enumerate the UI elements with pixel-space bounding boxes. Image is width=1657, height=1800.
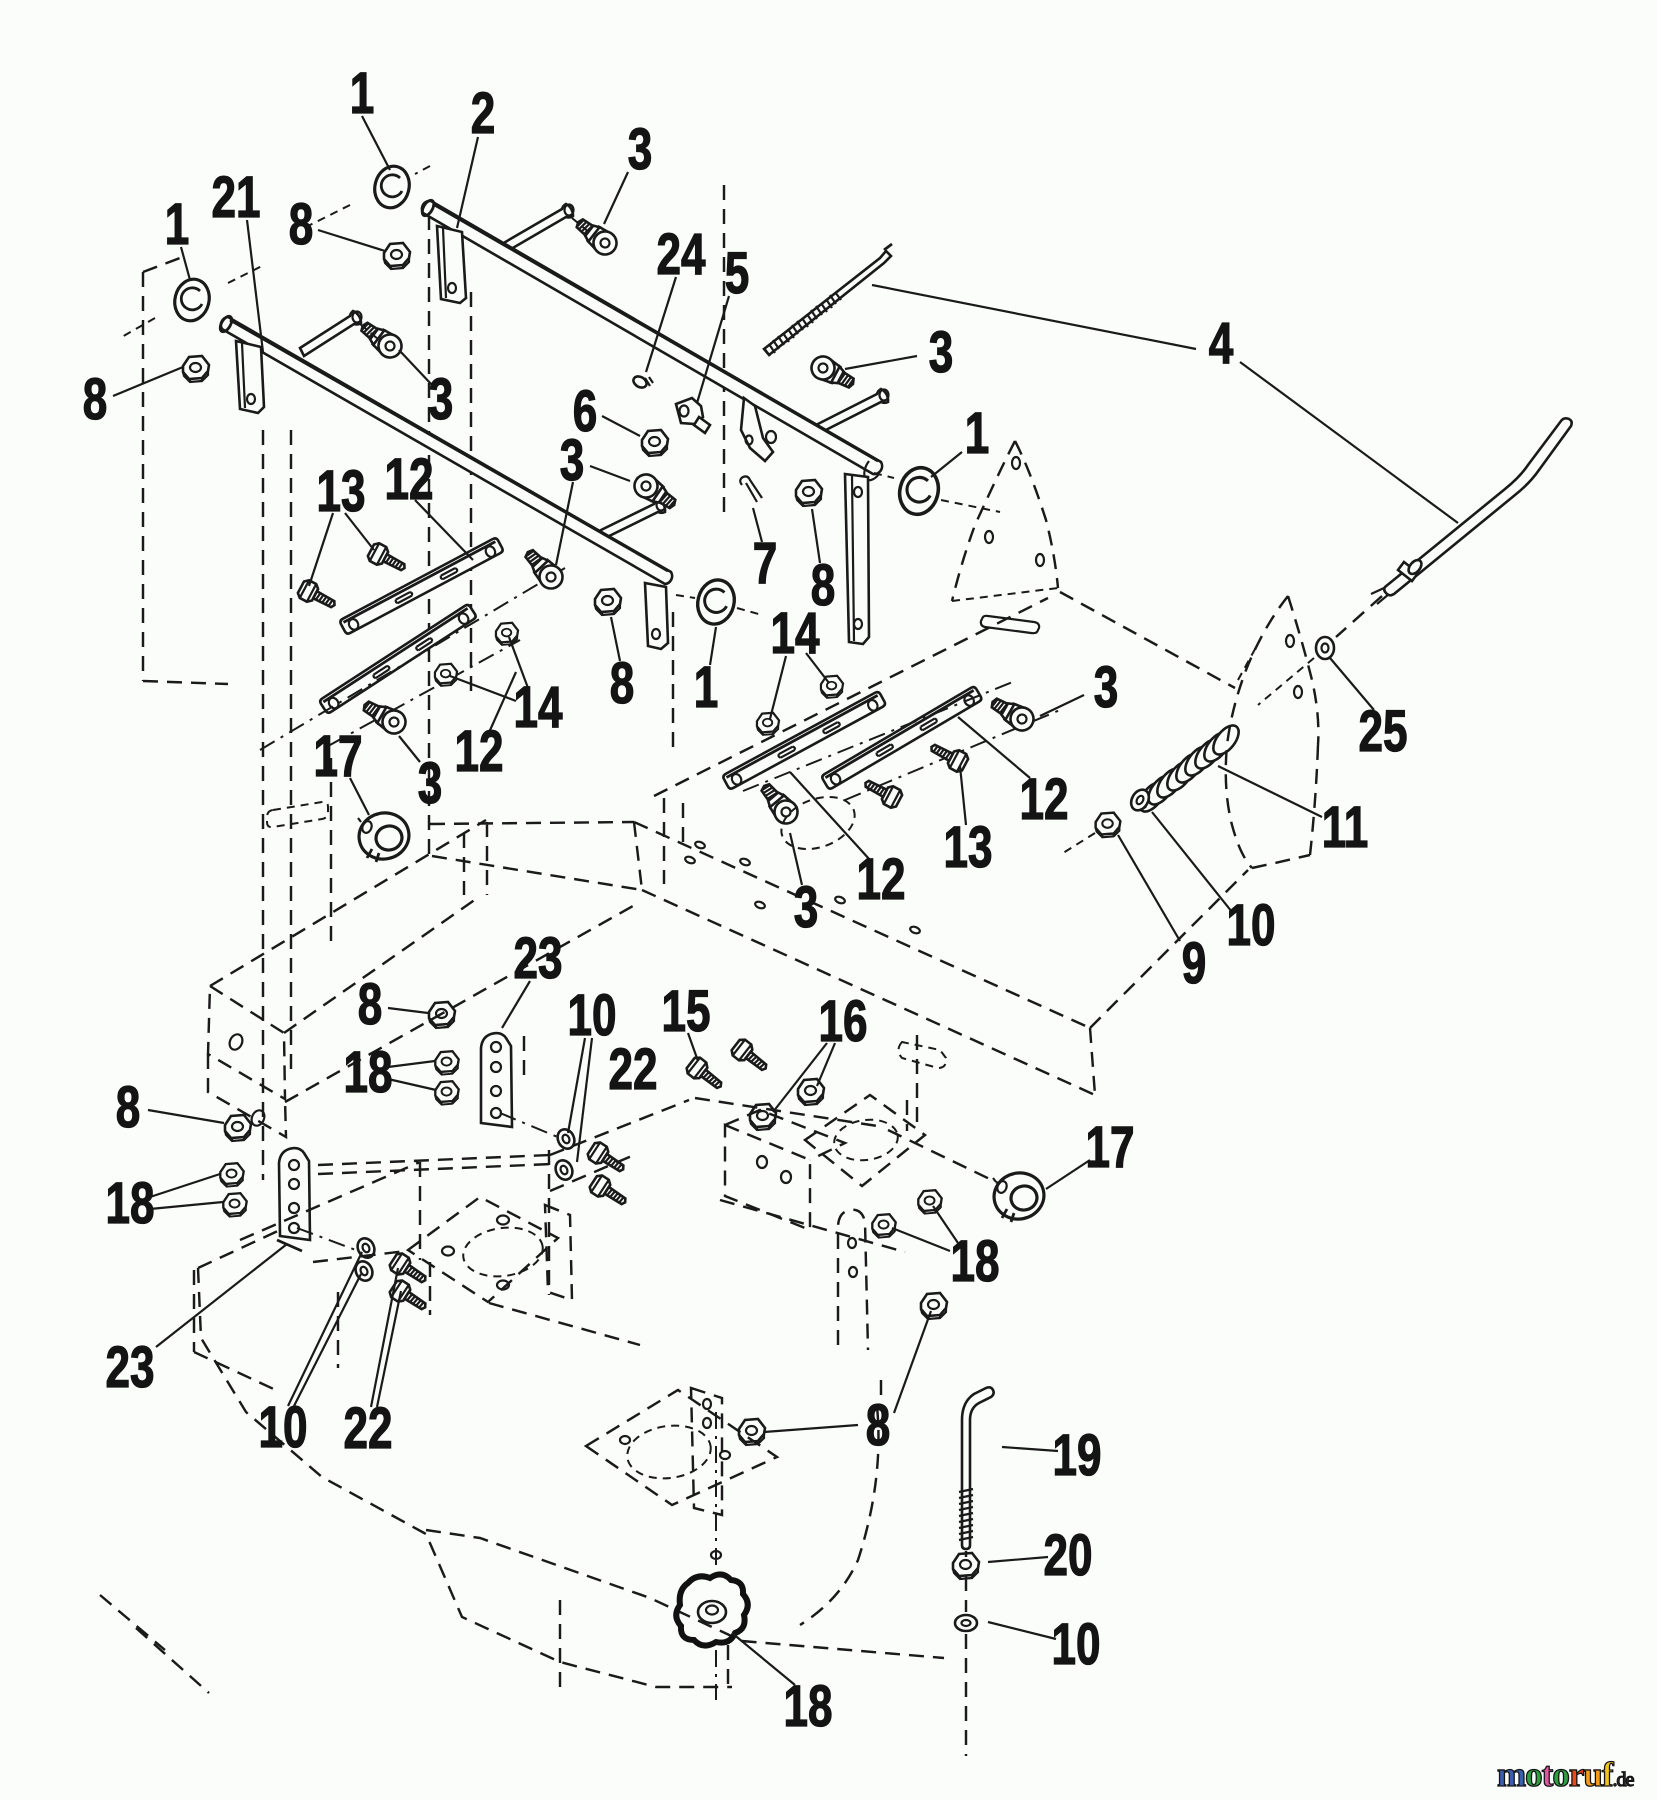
svg-text:3: 3 <box>628 116 653 181</box>
svg-text:10: 10 <box>1051 1611 1100 1676</box>
svg-text:1: 1 <box>165 191 190 256</box>
svg-text:14: 14 <box>513 674 562 739</box>
svg-text:10: 10 <box>1226 892 1275 957</box>
svg-text:21: 21 <box>211 164 260 229</box>
svg-text:9: 9 <box>1182 930 1207 995</box>
svg-text:8: 8 <box>83 366 108 431</box>
svg-text:12: 12 <box>856 846 905 911</box>
svg-text:24: 24 <box>656 221 705 286</box>
svg-text:3: 3 <box>418 750 443 815</box>
svg-text:3: 3 <box>1094 654 1119 719</box>
svg-text:4: 4 <box>1209 310 1234 375</box>
svg-text:25: 25 <box>1358 698 1407 763</box>
svg-text:23: 23 <box>513 925 562 990</box>
svg-text:14: 14 <box>770 600 819 665</box>
svg-text:22: 22 <box>343 1395 392 1460</box>
svg-text:12: 12 <box>454 718 503 783</box>
svg-text:16: 16 <box>818 988 867 1053</box>
svg-text:motoruf.de: motoruf.de <box>1497 1755 1634 1794</box>
svg-text:12: 12 <box>1019 766 1068 831</box>
svg-text:18: 18 <box>783 1673 832 1738</box>
svg-text:20: 20 <box>1043 1522 1092 1587</box>
svg-text:1: 1 <box>965 400 990 465</box>
svg-text:1: 1 <box>694 654 719 719</box>
svg-text:18: 18 <box>105 1170 154 1235</box>
svg-text:8: 8 <box>358 971 383 1036</box>
svg-text:10: 10 <box>258 1394 307 1459</box>
svg-text:23: 23 <box>105 1334 154 1399</box>
svg-text:8: 8 <box>610 650 635 715</box>
svg-text:3: 3 <box>429 366 454 431</box>
svg-text:7: 7 <box>753 530 778 595</box>
svg-text:17: 17 <box>313 723 362 788</box>
svg-text:1: 1 <box>350 60 375 125</box>
svg-text:3: 3 <box>560 427 585 492</box>
svg-text:8: 8 <box>289 191 314 256</box>
svg-text:2: 2 <box>471 80 496 145</box>
svg-text:5: 5 <box>725 240 750 305</box>
svg-text:18: 18 <box>950 1228 999 1293</box>
svg-text:3: 3 <box>929 319 954 384</box>
svg-text:3: 3 <box>794 874 819 939</box>
svg-text:17: 17 <box>1085 1114 1134 1179</box>
svg-text:13: 13 <box>943 814 992 879</box>
svg-text:13: 13 <box>316 458 365 523</box>
svg-text:8: 8 <box>116 1074 141 1139</box>
svg-text:19: 19 <box>1052 1422 1101 1487</box>
svg-text:18: 18 <box>343 1039 392 1104</box>
svg-text:11: 11 <box>1322 794 1369 859</box>
svg-text:15: 15 <box>661 978 710 1043</box>
svg-text:22: 22 <box>608 1036 657 1101</box>
svg-text:8: 8 <box>866 1392 891 1457</box>
svg-text:12: 12 <box>384 446 433 511</box>
